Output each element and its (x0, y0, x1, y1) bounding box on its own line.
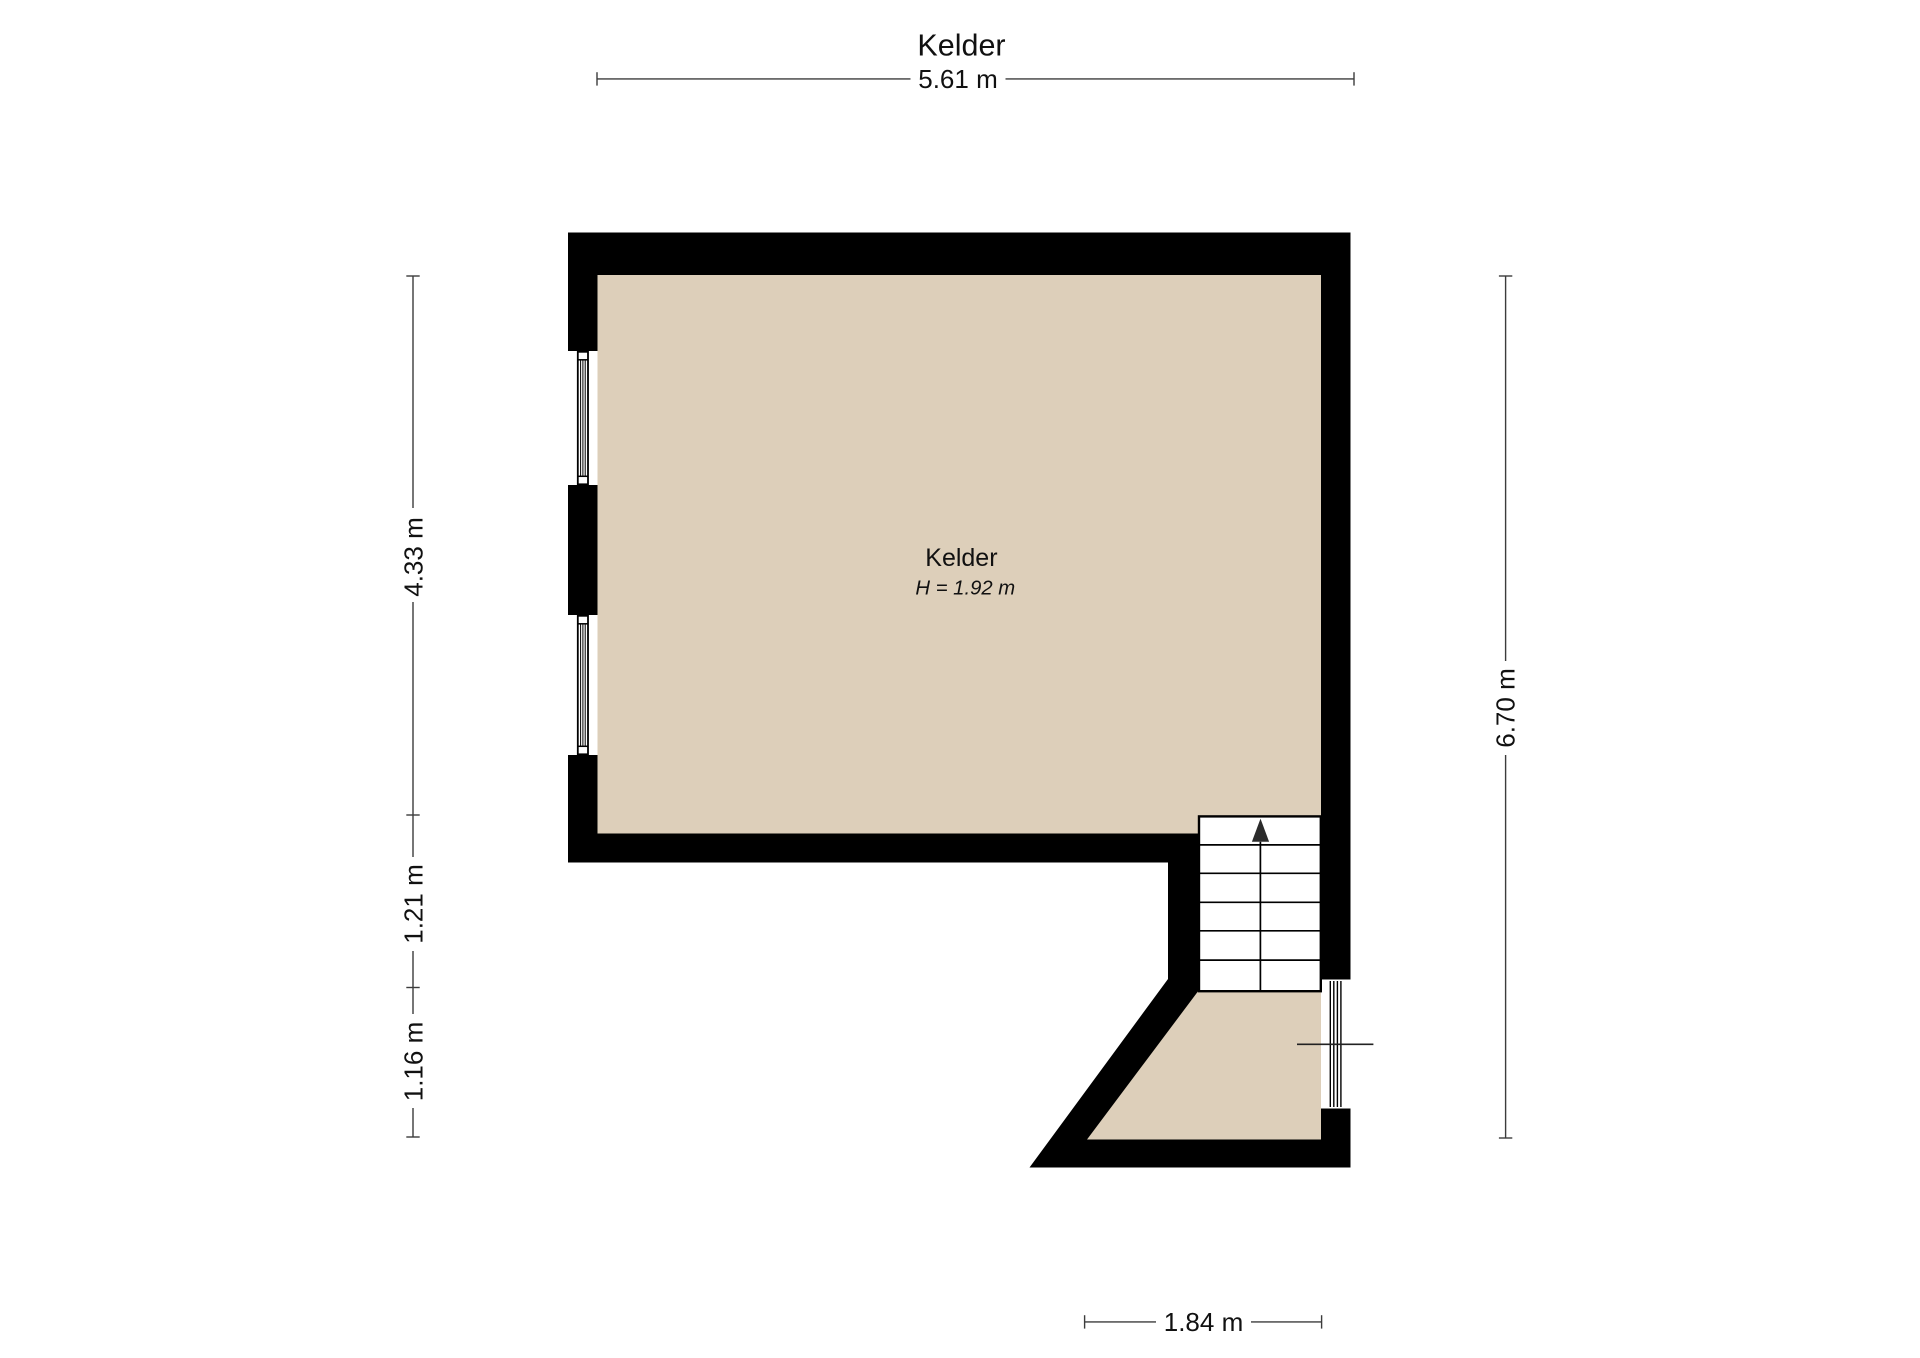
svg-text:1.16 m: 1.16 m (399, 1022, 429, 1102)
svg-text:1.21 m: 1.21 m (399, 864, 429, 944)
svg-text:Kelder: Kelder (925, 544, 997, 572)
svg-text:H = 1.92 m: H = 1.92 m (915, 578, 1015, 600)
svg-text:Kelder: Kelder (917, 29, 1005, 63)
svg-text:4.33 m: 4.33 m (399, 517, 429, 597)
svg-text:5.61 m: 5.61 m (918, 64, 998, 94)
svg-text:6.70 m: 6.70 m (1491, 668, 1521, 748)
svg-text:1.84 m: 1.84 m (1164, 1307, 1244, 1337)
